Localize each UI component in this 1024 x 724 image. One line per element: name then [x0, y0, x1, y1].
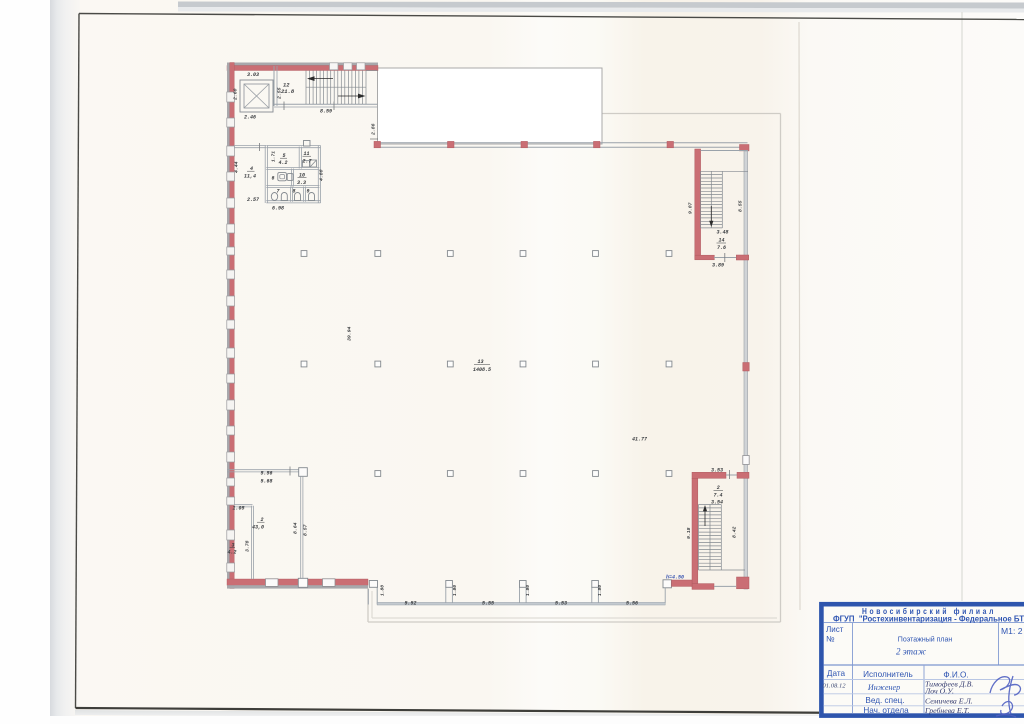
svg-text:Нач. отдела: Нач. отдела: [863, 706, 909, 715]
svg-text:Лист: Лист: [826, 625, 844, 634]
svg-text:№: №: [826, 635, 835, 644]
svg-text:2 этаж: 2 этаж: [896, 647, 927, 657]
svg-text:Лоч О.У.: Лоч О.У.: [924, 686, 954, 695]
svg-text:Инженер: Инженер: [867, 683, 900, 692]
svg-text:Вед. спец.: Вед. спец.: [865, 696, 904, 705]
svg-text:Дата: Дата: [827, 669, 846, 678]
svg-text:ФГУП "Ростехинвентаризация -: ФГУП "Ростехинвентаризация - Федеральное…: [833, 614, 1024, 624]
svg-text:01.08.12: 01.08.12: [822, 683, 846, 690]
svg-text:Ф.И.О.: Ф.И.О.: [943, 671, 968, 680]
svg-text:Семичева Е.Л.: Семичева Е.Л.: [925, 697, 973, 706]
svg-text:Поэтажный план: Поэтажный план: [898, 636, 953, 644]
svg-text:М1: 2: М1: 2: [1001, 626, 1023, 636]
svg-text:Исполнитель: Исполнитель: [863, 670, 913, 679]
svg-text:Гребнева Е.Т.: Гребнева Е.Т.: [924, 706, 969, 715]
